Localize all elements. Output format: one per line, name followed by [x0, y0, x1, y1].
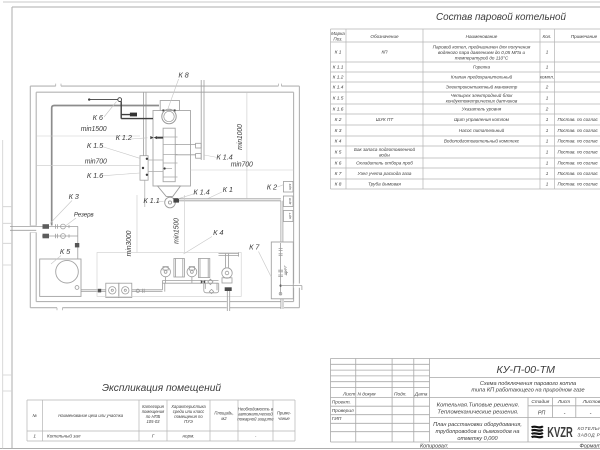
- svg-text:1: 1: [546, 117, 549, 122]
- svg-text:КУ-П-00-ТМ: КУ-П-00-ТМ: [497, 364, 556, 376]
- svg-text:min700: min700: [231, 162, 253, 169]
- svg-text:Постав. по соглас: Постав. по соглас: [558, 128, 599, 133]
- svg-text:Бак запаса подготовленной: Бак запаса подготовленной: [354, 146, 416, 152]
- svg-text:№: №: [32, 413, 37, 418]
- svg-text:К 3: К 3: [335, 128, 342, 134]
- svg-text:Горелка: Горелка: [473, 65, 491, 70]
- svg-text:типа КП работающего на природн: типа КП работающего на природном газе: [471, 388, 584, 394]
- svg-text:ЩУРГ: ЩУРГ: [284, 265, 288, 276]
- svg-text:1: 1: [546, 150, 549, 155]
- svg-text:К 6: К 6: [335, 161, 342, 167]
- svg-text:Марка: Марка: [331, 31, 345, 36]
- svg-text:ШУК ПТ: ШУК ПТ: [376, 117, 394, 122]
- svg-text:Клапан предохранительный: Клапан предохранительный: [451, 74, 513, 80]
- svg-text:Обозначение: Обозначение: [370, 34, 399, 39]
- svg-text:норм.: норм.: [182, 434, 194, 439]
- svg-text:1: 1: [546, 182, 549, 187]
- svg-text:2: 2: [545, 107, 549, 112]
- svg-text:К 1.5: К 1.5: [87, 141, 104, 150]
- svg-text:Указатель уровня: Указатель уровня: [462, 107, 502, 112]
- svg-text:ГИП: ГИП: [332, 416, 342, 422]
- svg-text:Примечание: Примечание: [571, 34, 598, 39]
- svg-text:К 1.5: К 1.5: [333, 96, 344, 102]
- svg-text:Формат А3: Формат А3: [580, 444, 600, 450]
- svg-text:ПУЭ: ПУЭ: [184, 419, 193, 424]
- svg-text:Четырех электродный блок: Четырех электродный блок: [451, 92, 514, 98]
- svg-text:1: 1: [546, 50, 549, 55]
- svg-text:пожарной защите: пожарной защите: [237, 417, 274, 422]
- svg-text:Наименование цеха или участка: Наименование цеха или участка: [58, 413, 123, 418]
- svg-text:Кол.: Кол.: [542, 34, 551, 39]
- svg-text:К 4: К 4: [213, 228, 223, 237]
- svg-text:ЩУТ: ЩУТ: [288, 213, 292, 219]
- svg-text:м2: м2: [221, 416, 227, 421]
- svg-text:К 3: К 3: [69, 192, 80, 201]
- svg-text:водяного пара давлением до 0,0: водяного пара давлением до 0,05 МПа и: [438, 50, 526, 55]
- svg-text:К 2: К 2: [267, 182, 277, 191]
- svg-text:min1500: min1500: [81, 126, 107, 133]
- svg-text:Водоподготовительный комплекс: Водоподготовительный комплекс: [444, 138, 520, 144]
- svg-text:Поз.: Поз.: [333, 37, 342, 42]
- svg-text:К 1.4: К 1.4: [193, 187, 209, 196]
- svg-text:Постав. по соглас: Постав. по соглас: [558, 171, 599, 176]
- svg-text:КП: КП: [381, 50, 388, 55]
- svg-text:ЗАВОД РОССИИ: ЗАВОД РОССИИ: [578, 432, 600, 437]
- svg-text:К 7: К 7: [249, 243, 260, 252]
- svg-text:Котельный зал: Котельный зал: [47, 433, 81, 439]
- svg-text:чание: чание: [278, 416, 290, 421]
- svg-text:К 5: К 5: [60, 247, 71, 256]
- svg-text:Труба дымовая: Труба дымовая: [368, 182, 401, 187]
- svg-text:Постав. по соглас: Постав. по соглас: [558, 161, 599, 166]
- svg-text:Резерв: Резерв: [74, 212, 95, 219]
- svg-text:К 8: К 8: [335, 182, 342, 188]
- svg-text:1: 1: [546, 65, 549, 70]
- svg-text:температурой до 110°С: температурой до 110°С: [455, 55, 509, 61]
- svg-text:Копировал:: Копировал:: [420, 444, 449, 450]
- svg-text:Насос питательный: Насос питательный: [459, 127, 505, 133]
- svg-text:Листов: Листов: [582, 399, 600, 405]
- svg-text:1: 1: [546, 128, 549, 133]
- svg-text:Проект.: Проект.: [332, 399, 351, 405]
- svg-text:-: -: [564, 410, 566, 416]
- svg-text:К 7: К 7: [335, 171, 342, 177]
- svg-text:Лист: Лист: [342, 391, 355, 397]
- svg-text:Состав паровой котельной: Состав паровой котельной: [436, 11, 566, 23]
- svg-text:Схема подключения парового кот: Схема подключения парового котла: [480, 381, 576, 387]
- svg-text:План расстановки оборудования,: План расстановки оборудования,: [433, 422, 522, 428]
- svg-text:КОТЕЛЬНЫЙ: КОТЕЛЬНЫЙ: [578, 424, 600, 431]
- svg-text:Охладитель отбора проб: Охладитель отбора проб: [356, 161, 413, 166]
- svg-text:Щит управления котлом: Щит управления котлом: [454, 117, 510, 122]
- svg-text:К 6: К 6: [93, 113, 104, 122]
- svg-text:-: -: [590, 410, 592, 416]
- svg-text:К 5: К 5: [335, 150, 342, 156]
- svg-text:Постав. по соглас: Постав. по соглас: [558, 139, 599, 144]
- svg-text:К 8: К 8: [178, 71, 189, 80]
- svg-text:Котельная.Типовые решения.: Котельная.Типовые решения.: [437, 403, 520, 409]
- svg-text:KVZR: KVZR: [547, 424, 573, 441]
- svg-text:Узел учета расхода газа: Узел учета расхода газа: [358, 171, 412, 176]
- svg-text:Экспликация помещений: Экспликация помещений: [102, 383, 221, 394]
- svg-text:Лист: Лист: [557, 399, 570, 405]
- svg-text:1: 1: [33, 434, 36, 439]
- svg-text:2: 2: [545, 85, 549, 90]
- svg-text:Наименование: Наименование: [466, 34, 498, 39]
- svg-text:105-03: 105-03: [146, 419, 160, 424]
- svg-text:К 1.2: К 1.2: [333, 75, 344, 81]
- svg-text:РП: РП: [538, 411, 546, 417]
- svg-text:Проверил: Проверил: [332, 408, 354, 414]
- svg-text:Подп.: Подп.: [394, 391, 407, 397]
- svg-text:трубопроводов и дымоходов на: трубопроводов и дымоходов на: [436, 429, 520, 435]
- svg-text:К 1.1: К 1.1: [143, 196, 159, 205]
- svg-text:К 1.4: К 1.4: [333, 85, 344, 91]
- svg-text:ЩУК: ЩУК: [288, 183, 292, 189]
- svg-text:Паровой котел, предназначен дл: Паровой котел, предназначен для получени…: [433, 44, 531, 50]
- svg-text:N докум: N докум: [358, 391, 377, 397]
- svg-text:1: 1: [546, 171, 549, 176]
- svg-text:1: 1: [546, 161, 549, 166]
- svg-text:1: 1: [546, 139, 549, 144]
- svg-text:ЩУВ: ЩУВ: [288, 198, 292, 204]
- svg-text:воды: воды: [379, 153, 390, 158]
- svg-text:К 1.4: К 1.4: [216, 152, 232, 161]
- svg-text:Площадь,: Площадь,: [214, 411, 233, 416]
- svg-text:min700: min700: [85, 159, 107, 166]
- svg-text:К 1: К 1: [223, 185, 233, 194]
- svg-text:К 4: К 4: [335, 139, 342, 145]
- svg-text:Тепломеханические решения.: Тепломеханические решения.: [437, 410, 518, 416]
- svg-text:min1000: min1000: [237, 124, 244, 150]
- svg-text:Приме-: Приме-: [277, 411, 292, 416]
- svg-text:min3000: min3000: [126, 230, 133, 256]
- svg-text:К 1.1: К 1.1: [333, 65, 344, 71]
- svg-text:Постав. по соглас: Постав. по соглас: [558, 150, 599, 155]
- svg-text:К 1.6: К 1.6: [333, 107, 344, 113]
- svg-text:К 1.2: К 1.2: [116, 133, 132, 142]
- svg-text:К 1.6: К 1.6: [87, 171, 104, 180]
- svg-text:кондуктометрических датчиков: кондуктометрических датчиков: [446, 99, 518, 104]
- svg-text:компл.: компл.: [540, 75, 554, 80]
- svg-text:1: 1: [546, 96, 549, 101]
- svg-text:К 1: К 1: [335, 50, 342, 56]
- svg-text:Стадия: Стадия: [531, 399, 549, 405]
- svg-text:Постав. по соглас: Постав. по соглас: [558, 182, 599, 187]
- svg-text:отметку 0,000: отметку 0,000: [457, 436, 498, 442]
- svg-text:Постав. по соглас: Постав. по соглас: [558, 117, 599, 122]
- svg-text:Дата: Дата: [414, 391, 428, 397]
- svg-text:Электроконтактный манометр: Электроконтактный манометр: [446, 84, 518, 90]
- svg-text:min1500: min1500: [173, 218, 180, 244]
- svg-text:К 2: К 2: [335, 117, 342, 123]
